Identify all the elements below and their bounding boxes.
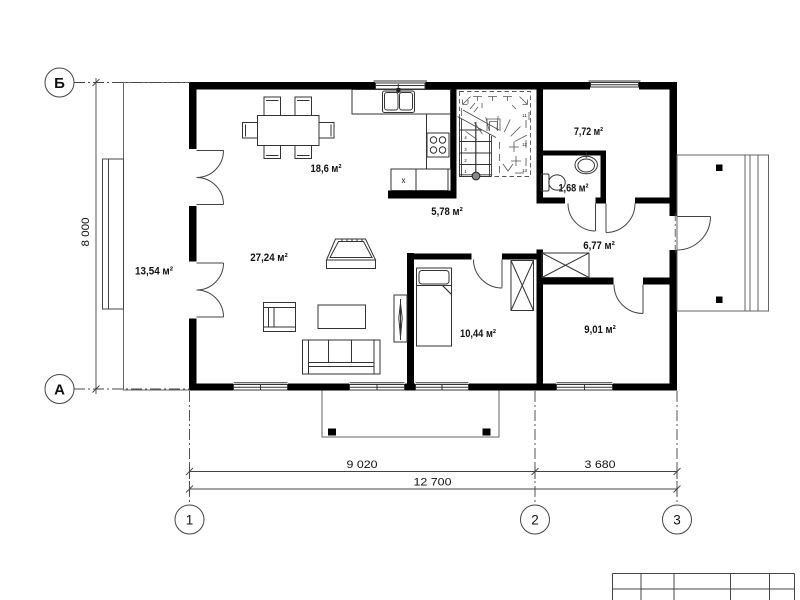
svg-text:2: 2	[531, 513, 539, 528]
svg-text:10,44 м²: 10,44 м²	[460, 328, 496, 340]
svg-text:6,77 м²: 6,77 м²	[583, 240, 615, 252]
svg-text:8 000: 8 000	[80, 218, 92, 247]
svg-text:12: 12	[522, 142, 528, 147]
svg-text:1,68 м²: 1,68 м²	[559, 183, 589, 195]
svg-text:27,24 м²: 27,24 м²	[250, 252, 288, 264]
svg-text:9 020: 9 020	[347, 459, 378, 471]
svg-text:А: А	[54, 382, 65, 399]
svg-text:1: 1	[186, 513, 194, 528]
svg-text:11: 11	[522, 113, 527, 118]
svg-text:12 700: 12 700	[414, 477, 452, 489]
svg-text:9,01 м²: 9,01 м²	[584, 324, 616, 336]
svg-text:13,54 м²: 13,54 м²	[135, 266, 173, 278]
svg-text:3: 3	[673, 513, 681, 528]
svg-text:13: 13	[522, 168, 528, 173]
svg-text:Б: Б	[54, 75, 65, 92]
svg-text:5,78 м²: 5,78 м²	[431, 206, 463, 218]
svg-text:18,6 м²: 18,6 м²	[311, 163, 342, 175]
svg-text:3 680: 3 680	[585, 459, 616, 471]
svg-text:x: x	[402, 176, 406, 185]
svg-text:7,72 м²: 7,72 м²	[574, 126, 603, 138]
